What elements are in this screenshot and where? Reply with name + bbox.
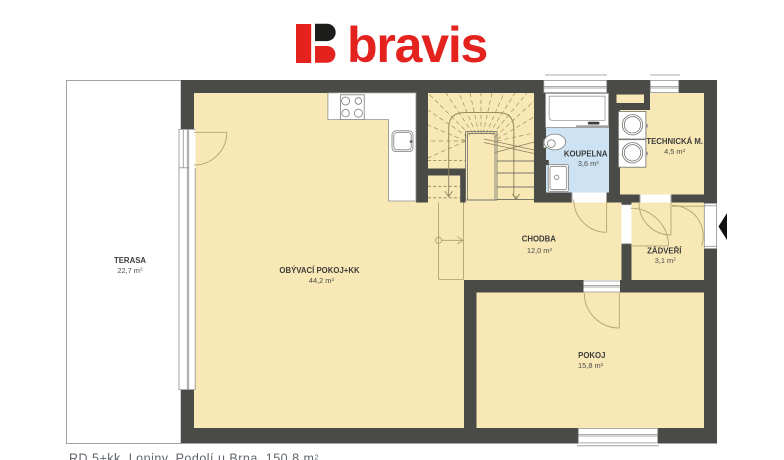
svg-text:CHODBA: CHODBA xyxy=(522,235,557,244)
svg-text:OBÝVACÍ POKOJ+KK: OBÝVACÍ POKOJ+KK xyxy=(279,266,360,275)
svg-text:KOUPELNA: KOUPELNA xyxy=(564,150,608,159)
svg-text:15,8 m2: 15,8 m2 xyxy=(578,361,604,370)
svg-text:ZÁDVEŘÍ: ZÁDVEŘÍ xyxy=(647,247,682,256)
svg-text:TERASA: TERASA xyxy=(114,256,146,265)
svg-text:3,1 m2: 3,1 m2 xyxy=(655,256,676,265)
svg-text:TECHNICKÁ M.: TECHNICKÁ M. xyxy=(646,137,703,146)
svg-text:4,5 m2: 4,5 m2 xyxy=(664,147,685,156)
svg-text:22,7 m2: 22,7 m2 xyxy=(117,266,143,275)
svg-text:bravis: bravis xyxy=(347,17,487,73)
svg-text:44,2 m2: 44,2 m2 xyxy=(309,276,335,285)
svg-text:3,6 m2: 3,6 m2 xyxy=(578,159,599,168)
svg-text:POKOJ: POKOJ xyxy=(578,351,605,360)
svg-text:RD 5+kk, Lopiny, Podolí u Brna: RD 5+kk, Lopiny, Podolí u Brna, 150,8 m2 xyxy=(69,452,319,460)
svg-text:12,0 m2: 12,0 m2 xyxy=(527,246,553,255)
